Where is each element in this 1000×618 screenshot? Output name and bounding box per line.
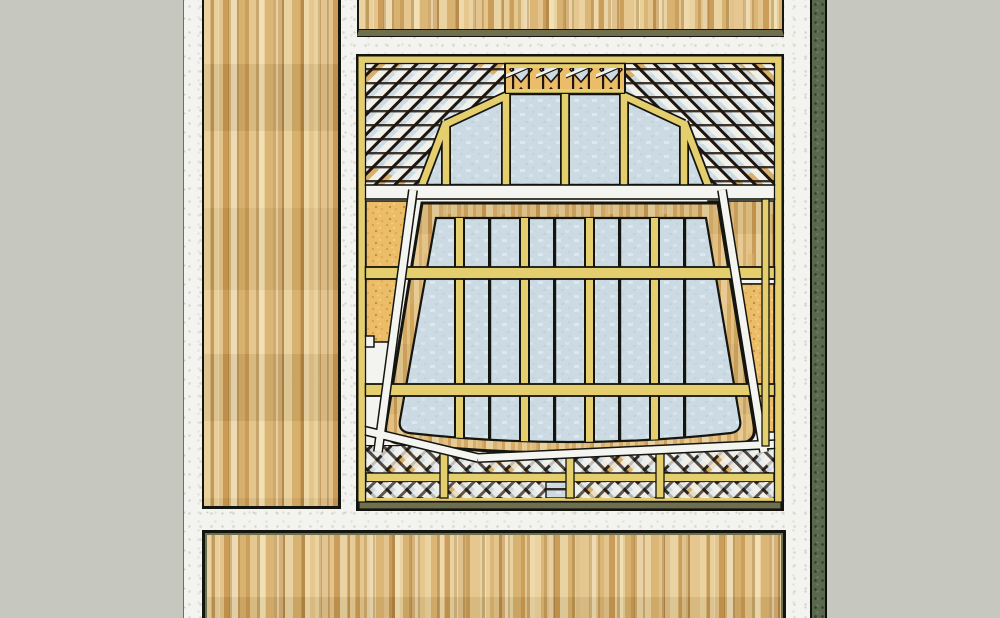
left-wood-panel [202, 0, 341, 509]
main-glazed-window [385, 203, 754, 453]
right-stud [762, 199, 769, 446]
frieze-band [505, 63, 625, 94]
framed-opening-structure [356, 54, 784, 511]
top-wood-panel [357, 0, 784, 36]
bottom-wood-panel [202, 530, 786, 618]
render-viewport [0, 0, 1000, 618]
green-trim-board [810, 0, 827, 618]
